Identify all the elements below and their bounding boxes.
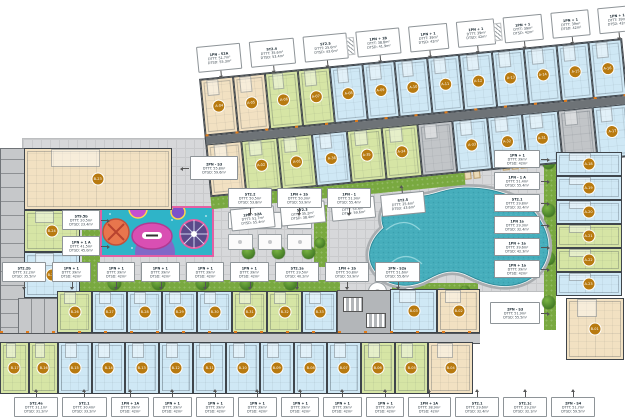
unit-spec-callout: 1PN + 1DTTT: 39m²DTSD: 42m²: [597, 5, 625, 35]
apartment-unit[interactable]: [417, 121, 457, 176]
unit-number-badge: A-10: [406, 80, 420, 94]
callout-arrow: [24, 282, 25, 287]
apartment-unit[interactable]: A-05: [233, 74, 271, 133]
unit-number-badge: A-22: [583, 254, 596, 267]
block-b-detached-unit: B-01: [566, 298, 624, 360]
unit-number-badge: A-08: [341, 86, 355, 100]
apartment-unit[interactable]: A-13: [492, 49, 530, 108]
apartment-unit[interactable]: B-05: [395, 342, 429, 394]
unit-spec-callout: ST2.2DTTT: 50.5m²DTSD: 53.8m²: [228, 188, 272, 208]
apartment-unit[interactable]: B-03: [390, 289, 437, 333]
apartment-unit[interactable]: B-17: [0, 342, 29, 394]
callout-arrow: [525, 392, 526, 397]
callout-arrow: [398, 282, 399, 287]
apartment-unit[interactable]: B-04: [428, 342, 473, 394]
apartment-unit[interactable]: B-08: [294, 342, 328, 394]
apartment-unit[interactable]: A-08: [330, 64, 368, 123]
unit-spec-callout: ST2.1DTTT: 29.8m²DTSD: 32.4m²: [494, 194, 540, 212]
picnic-table-icon: [287, 234, 312, 251]
callout-arrow: [116, 282, 117, 287]
unit-spec-callout: 1PN - 1 ADTTT: 51.4m²DTSD: 55.4m²: [494, 172, 540, 190]
unit-number-badge: A-23: [583, 278, 596, 291]
unit-number-badge: A-35: [360, 148, 374, 162]
apartment-unit[interactable]: B-01: [566, 298, 624, 360]
callout-arrow: [349, 208, 350, 213]
unit-number-badge: A-34: [395, 145, 409, 159]
callout-arrow: [183, 168, 189, 169]
unit-spec-callout: 1PN + 1DTTT: 39m²DTSD: 42m²: [52, 262, 91, 282]
apartment-unit[interactable]: B-27: [92, 291, 127, 333]
unit-spec-callout: 1PN + 1DTTT: 39m²DTSD: 42m²: [281, 397, 320, 417]
callout-arrow: [300, 392, 301, 397]
pool-top-callouts: ST2.2DTTT: 50.5m²DTSD: 53.8m² 1PN + 1bDT…: [228, 188, 371, 208]
apartment-unit[interactable]: A-10: [394, 58, 432, 117]
unit-number-badge: B-16: [37, 362, 50, 375]
unit-spec-callout: 1PN + 1DTTT: 39m²DTSD: 42m²: [550, 9, 591, 39]
unit-number-badge: B-31: [243, 306, 256, 319]
unit-number-badge: B-07: [338, 362, 351, 375]
unit-number-badge: A-33: [465, 138, 479, 152]
unit-spec-callout: ST2.5DTTT: 25.6m²DTSD: 43.6m²: [380, 191, 426, 217]
callout-arrow: [130, 392, 131, 397]
callout-arrow: [380, 55, 381, 60]
unit-number-badge: A-09: [374, 83, 388, 97]
apartment-unit[interactable]: A-22: [556, 248, 622, 272]
apartment-unit[interactable]: A-07: [297, 67, 335, 126]
unit-spec-callout: 1PN + 1DTTT: 39m²DTSD: 42m²: [503, 14, 544, 44]
apartment-unit[interactable]: B-13: [125, 342, 159, 394]
unit-spec-callout: 1PN + 1DTTT: 39m²DTSD: 42m²: [494, 150, 540, 168]
unit-spec-callout: 1PN + 1bDTTT: 50.3m²DTSD: 53.9m²: [277, 188, 321, 208]
callout-arrow: [524, 41, 525, 46]
apartment-unit[interactable]: B-09: [260, 342, 294, 394]
unit-spec-callout: 1PN + 1DTTT: 39m²DTSD: 42m²: [230, 262, 269, 282]
apartment-unit[interactable]: A-23: [556, 272, 622, 296]
callout-arrow: [215, 392, 216, 397]
unit-spec-callout: 1PN + 1bDTTT: 50.8m²DTSD: 53.9m²: [325, 262, 369, 282]
stairs-icon: [343, 297, 363, 312]
stairs-icon: [366, 313, 386, 328]
unit-number-badge: B-10: [237, 362, 250, 375]
unit-number-badge: B-08: [304, 362, 317, 375]
unit-number-badge: B-12: [169, 362, 182, 375]
apartment-unit[interactable]: A-33: [452, 117, 492, 172]
callout-arrow: [347, 282, 348, 287]
apartment-unit[interactable]: A-34: [382, 124, 422, 179]
unit-spec-callout: 1PN + 1 ADTTT: 41.5m²DTSD: 45.0m²: [62, 236, 100, 256]
block-b-lower-row: B-17 B-16 B-15 B-14 B-13 B-12 B-11: [0, 342, 473, 394]
unit-number-badge: A-13: [503, 71, 517, 85]
apartment-unit[interactable]: A-01: [277, 134, 317, 189]
unit-number-badge: A-21: [583, 230, 596, 243]
apartment-unit[interactable]: A-17: [592, 104, 625, 159]
tree-icon: [315, 238, 325, 248]
callout-arrow: [541, 181, 547, 182]
unit-number-badge: B-04: [444, 362, 457, 375]
callout-arrow: [274, 66, 275, 71]
callout-arrow: [172, 392, 173, 397]
unit-spec-callout: 1PN + 1aDTTT: 39.6m²DTSD: 42.3m²: [494, 238, 540, 256]
apartment-unit[interactable]: B-29: [162, 291, 197, 333]
callout-arrow: [541, 313, 547, 314]
unit-number-badge: A-15: [568, 65, 582, 79]
unit-spec-callout: ST2.5DTTT: 25.6m²DTSD: 43.6m²: [302, 33, 349, 63]
callout-arrow: [477, 392, 478, 397]
unit-number-badge: A-20: [583, 206, 596, 219]
callout-arrow: [573, 392, 574, 397]
apartment-unit[interactable]: A-14: [524, 45, 562, 104]
unit-number-badge: B-09: [270, 362, 283, 375]
callout-arrow: [430, 51, 431, 56]
callout-arrow: [250, 282, 251, 287]
unit-number-badge: A-36: [325, 151, 339, 165]
callout-arrow: [541, 159, 547, 160]
unit-spec-callout: 1PN - S2aDTTT: 51.6m²DTSD: 55.6m²: [375, 262, 419, 282]
callout-arrow: [541, 203, 547, 204]
unit-spec-callout: 2PN - S4DTTT: 51.7m²DTSD: 59.5m²: [551, 397, 595, 417]
apartment-unit[interactable]: A-04: [200, 77, 238, 136]
unit-number-badge: B-29: [173, 306, 186, 319]
apartment-unit[interactable]: A-18: [556, 152, 622, 176]
unit-number-badge: A-07: [309, 90, 323, 104]
picnic-table-icon: [228, 234, 253, 251]
unit-number-badge: A-01: [290, 155, 304, 169]
unit-number-badge: A-14: [536, 68, 550, 82]
apartment-unit[interactable]: A-19: [556, 176, 622, 200]
unit-spec-callout: 1PN + 1DTTT: 39m²DTSD: 42m²: [186, 262, 225, 282]
apartment-unit[interactable]: A-15: [556, 42, 594, 101]
unit-spec-callout: ST2.1DTTT: 29.6m²DTSD: 32.4m²: [455, 397, 499, 417]
callout-arrow: [205, 282, 206, 287]
unit-number-badge: A-02: [254, 158, 268, 172]
unit-spec-callout: 1PN + 1DTTT: 39m²DTSD: 42m²: [97, 262, 136, 282]
apartment-unit[interactable]: A-16: [589, 39, 625, 98]
apartment-unit[interactable]: A-09: [362, 61, 400, 120]
unit-number-badge: B-15: [68, 362, 81, 375]
unit-number-badge: B-17: [8, 362, 21, 375]
unit-number-badge: A-12: [471, 74, 485, 88]
apartment-unit[interactable]: B-16: [29, 342, 58, 394]
unit-number-badge: B-23: [92, 173, 105, 186]
unit-spec-callout: ST2.4DTTT: 35.6m²DTSD: 53.4m²: [249, 38, 296, 68]
unit-number-badge: A-31: [535, 131, 549, 145]
apartment-unit[interactable]: B-23: [24, 148, 172, 210]
unit-spec-callout: 1PN + 1ADTTT: 39m²DTSD: 42m²: [111, 397, 150, 417]
callout-arrow: [101, 220, 107, 221]
callout-arrow: [541, 247, 547, 248]
apartment-unit[interactable]: B-26: [57, 291, 92, 333]
apartment-unit[interactable]: B-28: [127, 291, 162, 333]
site-floor-plan: 1PN - S2ADTTT: 51.7m²DTSD: 55.3m² ST2.4D…: [0, 0, 625, 420]
apartment-unit[interactable]: B-31: [232, 291, 267, 333]
callout-arrow: [619, 32, 620, 37]
unit-number-badge: B-32: [278, 306, 291, 319]
callout-arrow: [221, 71, 222, 76]
unit-number-badge: B-24: [46, 225, 59, 238]
apartment-unit[interactable]: B-06: [361, 342, 395, 394]
unit-spec-callout: 1PN - S2ADTTT: 51.7m²DTSD: 55.3m²: [196, 43, 243, 73]
callout-arrow: [36, 392, 37, 397]
unit-number-badge: B-03: [407, 305, 420, 318]
callout-arrow: [572, 37, 573, 42]
callout-arrow: [250, 208, 251, 213]
unit-spec-callout: ST2.4aDTTT: 31.1m²DTSD: 31.2m²: [14, 397, 58, 417]
callout-arrow: [72, 282, 73, 287]
unit-spec-callout: 1PN + 1DTTT: 39m²DTSD: 42m²: [408, 23, 449, 53]
unit-number-badge: A-32: [500, 135, 514, 149]
callout-arrow: [161, 282, 162, 287]
unit-number-badge: B-05: [405, 362, 418, 375]
callout-arrow: [101, 246, 107, 247]
apartment-unit[interactable]: A-12: [459, 52, 497, 111]
apartment-unit[interactable]: A-20: [556, 200, 622, 224]
unit-number-badge: B-26: [68, 306, 81, 319]
apartment-unit[interactable]: B-11: [193, 342, 227, 394]
apartment-unit[interactable]: B-07: [327, 342, 361, 394]
stair-elevator-core: [337, 290, 392, 335]
unit-number-badge: B-14: [102, 362, 115, 375]
unit-spec-callout: 1PN - S2ADTTT: 51.7m²DTSD: 55.4m²: [230, 205, 276, 231]
picnic-table-icon: [258, 234, 283, 251]
unit-number-badge: A-05: [244, 96, 258, 110]
unit-spec-callout: 1PN + 1DTTT: 39m²DTSD: 42m²: [196, 397, 235, 417]
unit-number-badge: A-11: [439, 77, 453, 91]
unit-number-badge: A-04: [212, 99, 226, 113]
unit-spec-callout: 1PN + 1DTTT: 39m²DTSD: 42m²: [238, 397, 277, 417]
unit-spec-callout: 1PN + 1DTTT: 39m²DTSD: 42m²: [366, 397, 405, 417]
playground-callouts: ST9.5bDTTT: 20.5m²DTSD: 23.4m² 1PN + 1 A…: [62, 210, 100, 256]
bottom-edge-callouts: ST2.4aDTTT: 31.1m²DTSD: 31.2m² ST2.1DTTT…: [14, 397, 595, 417]
callout-arrow: [297, 282, 298, 287]
mid-row-callouts: ST2.2bDTTT: 32.2m²DTSD: 35.5m² 1PN + 1DT…: [2, 262, 420, 282]
apartment-unit[interactable]: B-14: [92, 342, 126, 394]
callout-arrow: [257, 392, 258, 397]
unit-number-badge: A-18: [583, 158, 596, 171]
unit-spec-callout: ST2.1DTTT: 30.4m²DTSD: 33.2m²: [62, 397, 106, 417]
unit-number-badge: A-17: [605, 124, 619, 138]
unit-spec-callout: 1PN + 1BDTTT: 38.8m²DTSD: 41.9m²: [355, 27, 402, 57]
unit-spec-callout: 1PN + 1DTTT: 39m²DTSD: 42m²: [153, 397, 192, 417]
apartment-unit[interactable]: B-33: [302, 291, 337, 333]
unit-spec-callout: 1PN + 1DTTT: 39m²DTSD: 42m²: [455, 18, 496, 48]
unit-number-badge: B-27: [103, 306, 116, 319]
unit-number-badge: B-13: [136, 362, 149, 375]
callout-arrow: [84, 392, 85, 397]
unit-spec-callout: ST2.1cDTTT: 29.2m²DTSD: 32.1m²: [503, 397, 547, 417]
callout-arrow: [477, 46, 478, 51]
callout-arrow: [385, 392, 386, 397]
apartment-unit[interactable]: A-11: [427, 55, 465, 114]
unit-number-badge: B-06: [371, 362, 384, 375]
callout-arrow: [299, 208, 300, 213]
unit-number-badge: A-19: [583, 182, 596, 195]
unit-spec-callout: 1PN + 1ADTTT: 38.9m²DTSD: 42m²: [408, 397, 450, 417]
apartment-unit[interactable]: A-21: [556, 224, 622, 248]
unit-number-badge: B-11: [203, 362, 216, 375]
block-a-right-strip: A-18 A-19 A-20 A-21 A-22 A-23: [556, 152, 622, 296]
callout-arrow: [327, 60, 328, 65]
callout-arrow: [541, 225, 547, 226]
unit-spec-callout: 1PN + 1aDTTT: 39m²DTSD: 42m²: [494, 260, 540, 278]
apartment-unit[interactable]: B-02: [437, 289, 480, 333]
unit-number-badge: B-02: [452, 305, 465, 318]
unit-spec-callout: 1PN 1aDTTT: 29.3m²DTSD: 32.4m²: [494, 216, 540, 234]
unit-spec-callout: 1PN + 1DTTT: 39m²DTSD: 42m²: [141, 262, 180, 282]
unit-spec-callout: 1PN - 1DTTT: 51.9m²DTSD: 55.4m²: [327, 188, 371, 208]
unit-spec-callout: 2PN - S3 DTTT: 55.8m² DTSD: 59.6m²: [190, 156, 238, 180]
unit-number-badge: B-30: [208, 306, 221, 319]
apartment-unit[interactable]: B-10: [226, 342, 260, 394]
apartment-unit[interactable]: B-32: [267, 291, 302, 333]
apartment-unit[interactable]: A-35: [347, 128, 387, 183]
unit-spec-callout: 1PN + 1DTTT: 39m²DTSD: 42m²: [323, 397, 362, 417]
unit-number-badge: B-28: [138, 306, 151, 319]
apartment-unit[interactable]: B-30: [197, 291, 232, 333]
callout-arrow: [342, 392, 343, 397]
unit-number-badge: A-16: [601, 62, 615, 76]
unit-spec-callout: ST2.1aDTTT: 29.5m²DTSD: 40.2m²: [275, 262, 319, 282]
apartment-unit[interactable]: A-06: [265, 70, 303, 129]
block-b-upper-right-units: B-03 B-02: [390, 289, 480, 333]
apartment-unit[interactable]: B-15: [58, 342, 92, 394]
callout-arrow: [541, 269, 547, 270]
apartment-unit[interactable]: A-02: [241, 138, 281, 193]
callout-arrow: [429, 392, 430, 397]
apartment-unit[interactable]: A-36: [312, 131, 352, 186]
unit-number-badge: B-01: [589, 323, 602, 336]
unit-number-badge: A-06: [277, 93, 291, 107]
unit-spec-callout: ST9.5bDTTT: 20.5m²DTSD: 23.4m²: [62, 210, 100, 230]
unit-number-badge: B-33: [313, 306, 326, 319]
block-b-upper-row: B-26 B-27 B-28 B-29 B-30 B-31 B-32: [57, 291, 337, 333]
unit-spec-callout: 2PN - S3 DTTT: 51.9m² DTSD: 55.5m²: [490, 302, 540, 324]
apartment-unit[interactable]: B-12: [159, 342, 193, 394]
right-strip-callouts: 1PN + 1DTTT: 39m²DTSD: 42m² 1PN - 1 ADTT…: [494, 150, 540, 278]
unit-spec-callout: ST2.2bDTTT: 32.2m²DTSD: 35.5m²: [2, 262, 46, 282]
